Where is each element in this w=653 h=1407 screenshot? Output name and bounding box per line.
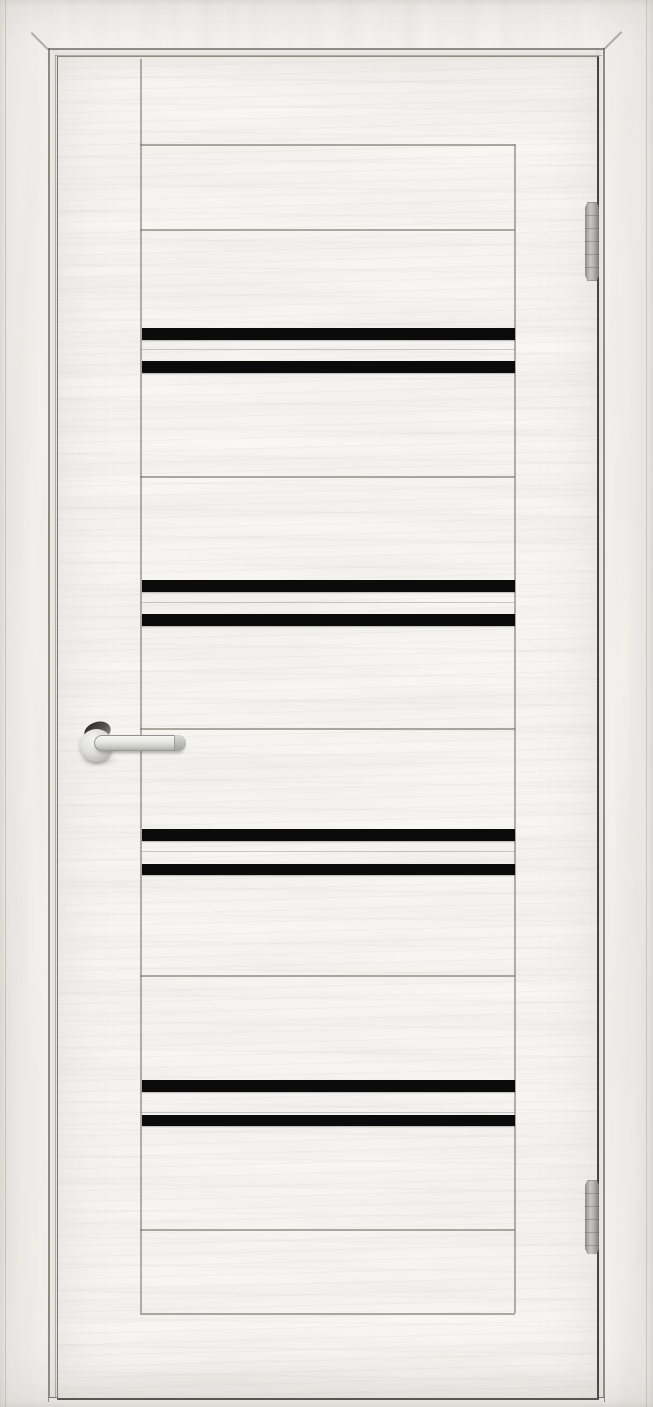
panel-groove [140, 1229, 515, 1231]
glass-stripe [142, 1080, 515, 1092]
panel-groove [140, 144, 515, 146]
casing-outer-edge-right [646, 0, 647, 1407]
casing-miter-joint-top-left [31, 32, 49, 50]
jamb-inner-line-left [48, 48, 50, 1402]
glass-stripe [142, 580, 515, 592]
panel-groove [140, 349, 515, 350]
glass-stripe [142, 328, 515, 340]
jamb-second-line-left [55, 55, 56, 1397]
casing-miter-joint-top-right [604, 31, 622, 49]
panel-groove [140, 975, 515, 977]
casing-outer-edge-left [5, 0, 6, 1407]
glass-stripe [142, 614, 515, 626]
glass-stripe [142, 361, 515, 373]
panel-groove [140, 1112, 515, 1113]
panel-groove [140, 851, 515, 852]
glass-stripe [142, 829, 515, 841]
panel-groove [140, 476, 515, 478]
jamb-inner-line-top [48, 48, 605, 50]
panel-groove [140, 229, 515, 231]
panel-groove [140, 1313, 515, 1315]
jamb-inner-line-right [603, 48, 605, 1402]
glass-stripe [142, 1115, 515, 1126]
hinge-bottom [585, 1180, 599, 1254]
panel-groove [140, 602, 515, 603]
door-photo [0, 0, 653, 1407]
panel-groove [140, 728, 515, 730]
hinge-top [585, 202, 599, 281]
door-handle-lever [94, 735, 186, 751]
glass-stripe [142, 864, 515, 875]
door-leaf [57, 56, 599, 1400]
